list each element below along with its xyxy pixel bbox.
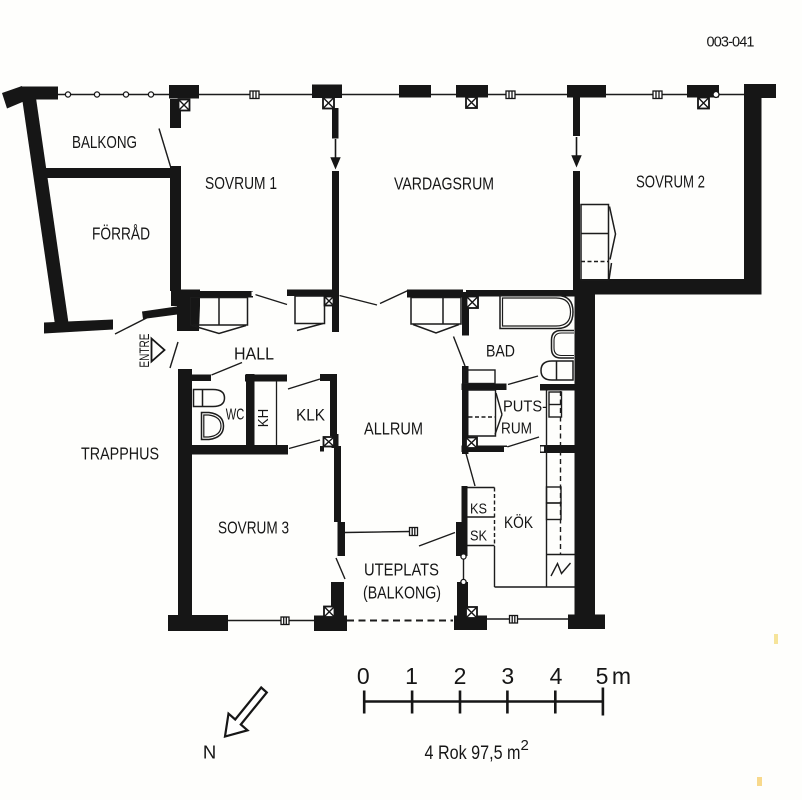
svg-text:4 Rok 97,5 m: 4 Rok 97,5 m — [425, 743, 521, 764]
svg-text:4: 4 — [550, 663, 563, 689]
svg-text:KLK: KLK — [296, 407, 325, 425]
svg-text:SOVRUM 1: SOVRUM 1 — [205, 173, 277, 193]
svg-text:ENTRE: ENTRE — [136, 334, 152, 368]
svg-text:003-041: 003-041 — [707, 35, 755, 51]
svg-text:BAD: BAD — [486, 343, 515, 361]
svg-text:3: 3 — [501, 663, 514, 689]
svg-text:PUTS-: PUTS- — [503, 399, 547, 416]
svg-text:WC: WC — [226, 407, 245, 424]
svg-text:ALLRUM: ALLRUM — [364, 419, 423, 439]
svg-text:SOVRUM 3: SOVRUM 3 — [218, 518, 289, 538]
svg-text:KS: KS — [470, 501, 487, 518]
svg-text:0: 0 — [357, 663, 370, 689]
svg-text:5: 5 — [596, 663, 609, 689]
svg-text:SOVRUM 2: SOVRUM 2 — [636, 172, 705, 192]
svg-text:UTEPLATS: UTEPLATS — [364, 560, 439, 580]
svg-text:VARDAGSRUM: VARDAGSRUM — [394, 174, 494, 194]
svg-text:SK: SK — [470, 528, 487, 545]
svg-text:KH: KH — [256, 409, 272, 428]
svg-text:TRAPPHUS: TRAPPHUS — [81, 444, 159, 464]
svg-text:HALL: HALL — [234, 344, 274, 364]
svg-text:RUM: RUM — [501, 421, 532, 438]
svg-text:KÖK: KÖK — [504, 514, 533, 532]
svg-text:(BALKONG): (BALKONG) — [363, 583, 441, 603]
svg-text:m: m — [612, 663, 631, 689]
svg-text:BALKONG: BALKONG — [72, 132, 137, 152]
svg-text:2: 2 — [521, 737, 529, 754]
svg-text:N: N — [203, 742, 216, 763]
svg-text:2: 2 — [454, 663, 467, 689]
svg-text:1: 1 — [405, 663, 418, 689]
svg-text:FÖRRÅD: FÖRRÅD — [92, 224, 150, 244]
